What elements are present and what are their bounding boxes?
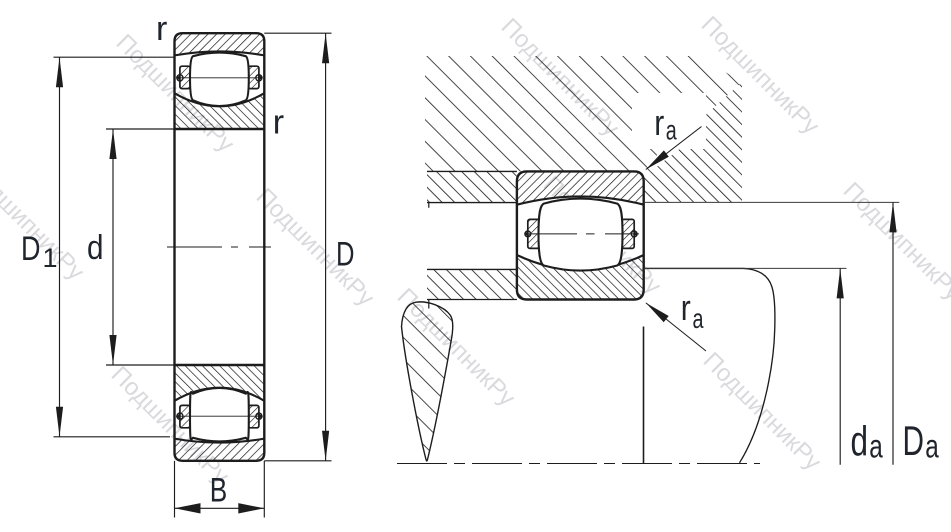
svg-text:D: D — [336, 236, 355, 274]
svg-text:a: a — [693, 303, 704, 334]
svg-text:ПодшипникРу: ПодшипникРу — [838, 177, 951, 306]
svg-text:a: a — [666, 115, 677, 146]
svg-text:B: B — [210, 472, 228, 510]
svg-text:1: 1 — [43, 243, 58, 273]
svg-text:r: r — [681, 287, 691, 328]
svg-text:a: a — [925, 428, 939, 465]
svg-text:D: D — [21, 230, 41, 268]
svg-text:r: r — [156, 10, 167, 48]
svg-text:d: d — [87, 229, 104, 267]
svg-text:D: D — [903, 417, 925, 464]
svg-text:r: r — [273, 103, 284, 141]
svg-text:a: a — [869, 428, 883, 465]
svg-text:d: d — [851, 417, 869, 464]
svg-text:r: r — [654, 102, 664, 143]
